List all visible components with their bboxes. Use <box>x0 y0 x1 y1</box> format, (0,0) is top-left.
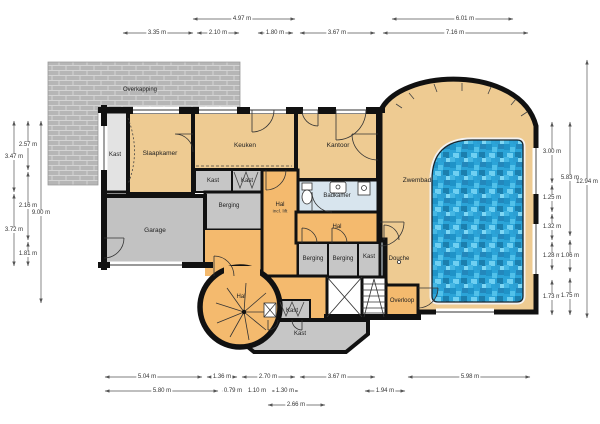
room-label-kast-row: Kast <box>363 254 375 260</box>
room-label-berging-left: Berging <box>219 203 240 209</box>
room-label-berging-1: Berging <box>303 256 324 262</box>
dim-right-total: 12.94 m <box>575 179 600 185</box>
dim-bot1-3: 3.67 m <box>326 374 347 380</box>
room-label-hal-center: Hal <box>332 224 341 230</box>
kast-hatch-box <box>264 303 276 317</box>
room-berging-left <box>205 192 262 230</box>
dim-left-total: 9.00 m <box>30 210 51 216</box>
dim-top2-3: 3.67 m <box>326 30 347 36</box>
room-label-garage: Garage <box>144 228 166 235</box>
dim-bot2-0: 5.80 m <box>151 388 172 394</box>
dim-bot2-2: 1.10 m <box>246 388 267 394</box>
dim-left-inner-1: 2.16 m <box>17 203 38 209</box>
dim-top2-0: 3.35 m <box>146 30 167 36</box>
room-label-overkapping: Overkapping <box>123 87 157 93</box>
room-label-overloop: Overloop <box>390 298 414 304</box>
room-label-kast-mid-2: Kast <box>241 178 253 184</box>
dim-right-inner-2: 1.32 m <box>541 224 562 230</box>
dim-bot1-0: 5.04 m <box>136 374 157 380</box>
fixture-drain-icon <box>362 186 367 191</box>
dim-right-mid-2: 1.75 m <box>559 293 580 299</box>
dim-bot2-4: 1.94 m <box>374 388 395 394</box>
dim-bot2-3: 1.30 m <box>274 388 295 394</box>
sink-drain-icon <box>336 185 340 189</box>
room-label-keuken: Keuken <box>234 143 256 150</box>
room-label-kast-tiny: Kast <box>286 308 298 314</box>
dim-top2-1: 2.10 m <box>207 30 228 36</box>
room-label-berging-2: Berging <box>333 256 354 262</box>
room-label-kast-mid-1: Kast <box>207 178 219 184</box>
dim-bot1-2: 2.70 m <box>257 374 278 380</box>
dim-top2-4: 7.16 m <box>444 30 465 36</box>
room-label-kast-left: Kast <box>109 152 121 158</box>
room-kast-row <box>358 243 380 277</box>
room-label-slaapkamer: Slaapkamer <box>143 151 178 158</box>
floorplan-drawing <box>0 0 600 424</box>
room-label-kast-bay: Kast <box>294 331 306 337</box>
dim-bot2-1: 0.79 m <box>222 388 243 394</box>
dim-bot3-0: 2.66 m <box>285 402 306 408</box>
room-label-hal: Hal <box>275 202 284 208</box>
dim-bot1-4: 5.98 m <box>459 374 480 380</box>
room-label-douche: Douche <box>389 256 410 262</box>
toilet-tank-icon <box>302 183 312 190</box>
room-label-hal-tower: Hal <box>236 294 245 300</box>
dim-left-outer-0: 3.47 m <box>3 154 24 160</box>
room-hal-strip <box>262 170 298 276</box>
dim-top1-0: 4.97 m <box>231 16 252 22</box>
toilet-icon <box>302 190 312 204</box>
dim-bot1-1: 1.36 m <box>211 374 232 380</box>
dim-right-mid-1: 1.06 m <box>559 253 580 259</box>
dim-right-inner-0: 3.00 m <box>541 149 562 155</box>
dim-left-inner-0: 2.57 m <box>17 142 38 148</box>
dim-left-inner-2: 1.81 m <box>17 251 38 257</box>
dim-top2-2: 1.80 m <box>264 30 285 36</box>
pool <box>432 140 523 302</box>
room-label-hal-note: incl. lift <box>273 211 288 216</box>
tower-opening <box>224 266 260 279</box>
dim-top1-1: 6.01 m <box>454 16 475 22</box>
dim-left-outer-1: 3.72 m <box>3 227 24 233</box>
room-label-kantoor: Kantoor <box>327 143 350 150</box>
room-label-zwembad: Zwembad <box>403 178 432 185</box>
dim-right-inner-1: 1.25 m <box>541 195 562 201</box>
floorplan: Overkapping Kast Slaapkamer Keuken Kanto… <box>0 0 600 424</box>
room-label-badkamer: Badkamer <box>323 193 350 199</box>
